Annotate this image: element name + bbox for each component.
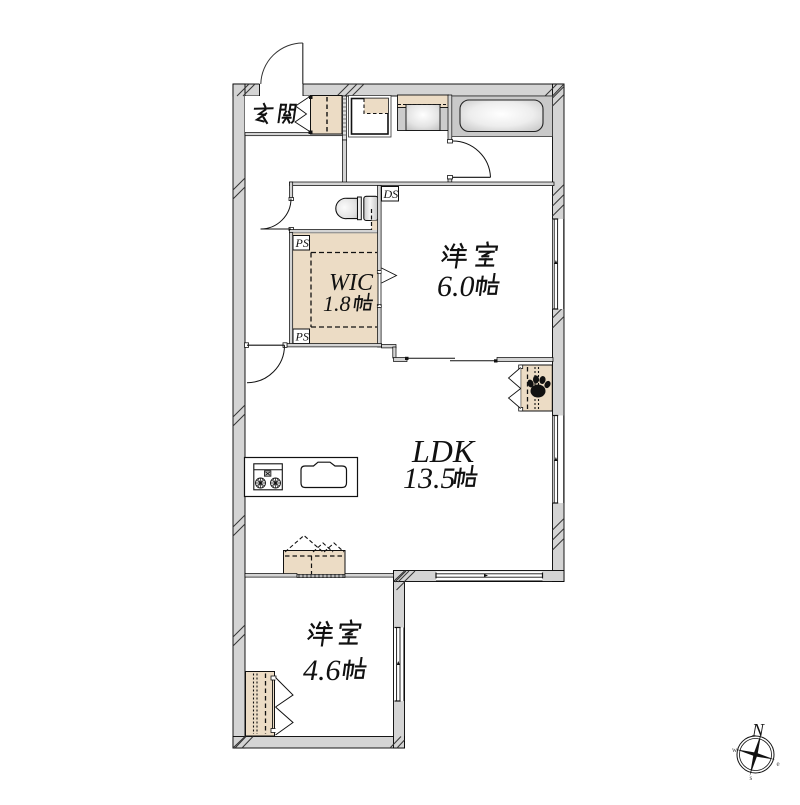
svg-text:s: s (750, 774, 753, 782)
svg-text:13.5: 13.5 (403, 462, 456, 495)
svg-text:1.8: 1.8 (323, 291, 351, 316)
svg-text:PS: PS (295, 236, 309, 250)
svg-text:4.6: 4.6 (303, 654, 341, 687)
svg-text:N: N (751, 720, 765, 740)
svg-text:6.0: 6.0 (437, 270, 475, 303)
svg-text:e: e (777, 760, 780, 768)
svg-text:DS: DS (383, 187, 399, 201)
svg-text:PS: PS (295, 330, 309, 344)
